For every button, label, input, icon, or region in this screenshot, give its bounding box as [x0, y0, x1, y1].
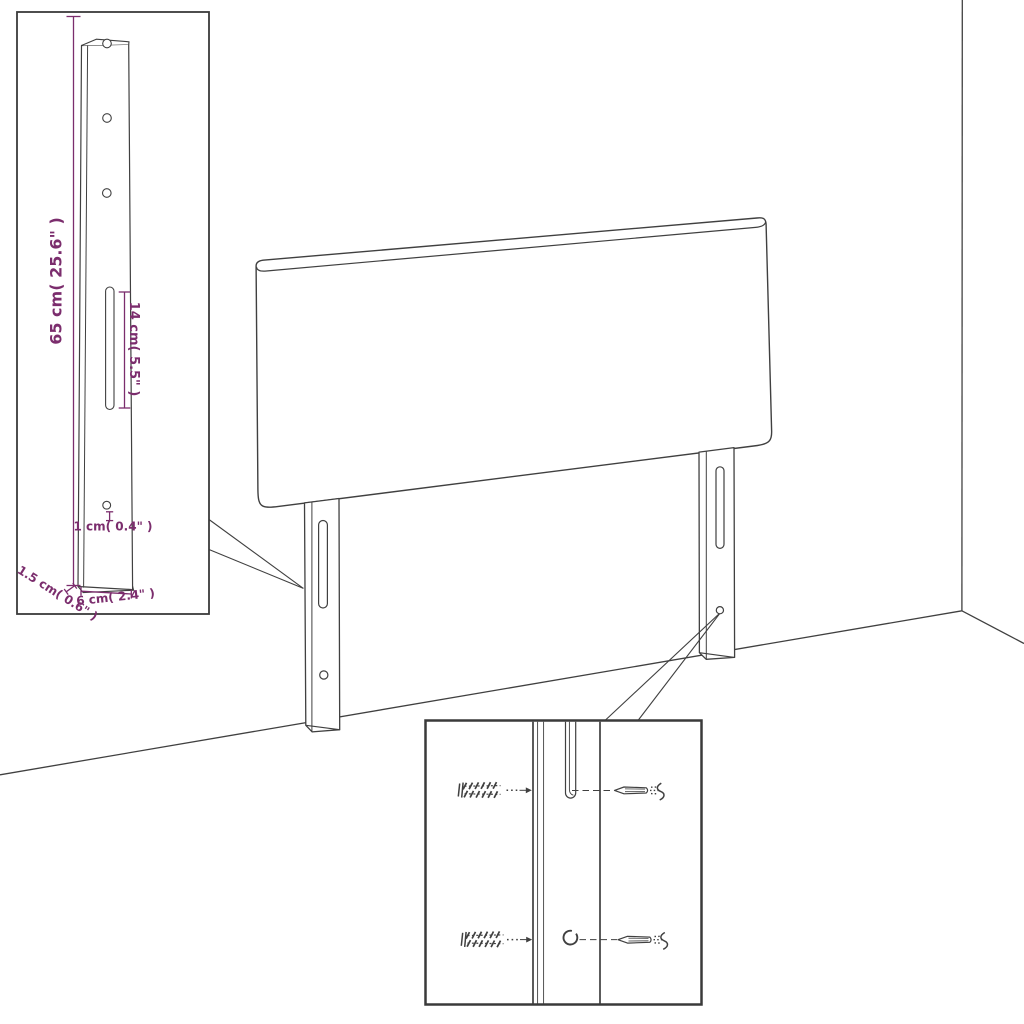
dim-height-label: 65 cm( 25.6" ): [47, 217, 66, 345]
callout-right-inner: [638, 614, 720, 721]
callout-lines: [209, 520, 720, 721]
dim-slot-label: 14 cm( 5.5" ): [126, 302, 141, 397]
right-leg-slot: [716, 467, 724, 549]
floor-line-right: [962, 611, 1024, 644]
leg-detail-inset: 65 cm( 25.6" ) 14 cm( 5.5" ) 1 cm( 0.4" …: [15, 12, 209, 623]
left-leg-hole: [320, 671, 328, 679]
leg-detail-drawing: [78, 39, 134, 592]
callout-left-lower: [209, 550, 303, 589]
assembly-diagram: 65 cm( 25.6" ) 14 cm( 5.5" ) 1 cm( 0.4" …: [0, 0, 1024, 1024]
left-mount-leg: [305, 499, 340, 732]
assembly-diagram-page: 65 cm( 25.6" ) 14 cm( 5.5" ) 1 cm( 0.4" …: [0, 0, 1024, 1024]
dim-hole-label: 1 cm( 0.4" ): [74, 520, 153, 534]
callout-right-outer: [605, 614, 719, 721]
inset-leg-hole-3: [103, 189, 112, 198]
inset-leg-hole-4: [103, 501, 111, 509]
callout-left-upper: [209, 520, 303, 589]
inset-leg-hole-1: [103, 39, 112, 48]
hardware-inset-border: [426, 721, 702, 1005]
right-leg-hole: [716, 607, 723, 614]
headboard-panel: [256, 218, 772, 507]
inset-leg-hole-2: [103, 114, 112, 123]
hardware-inset: [426, 721, 702, 1005]
inset-leg-slot: [106, 287, 114, 410]
left-leg-slot: [319, 521, 328, 609]
panel-outline: [256, 218, 772, 507]
